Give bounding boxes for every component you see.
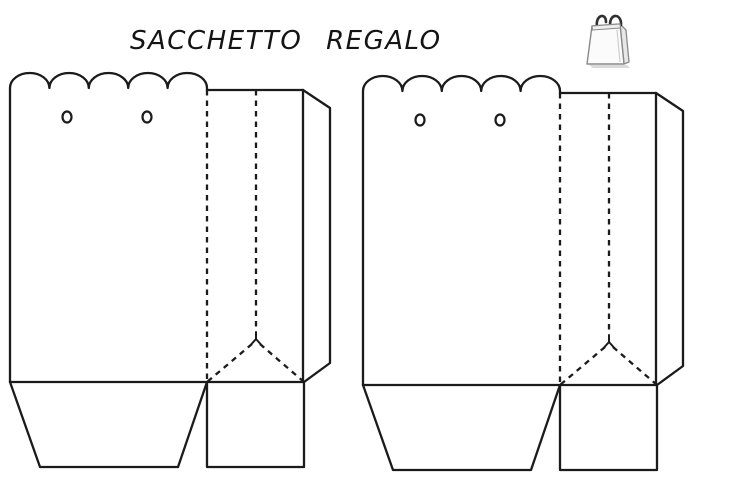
bag-templates-diagram xyxy=(0,0,735,497)
right-bag-template xyxy=(363,76,683,470)
craft-template-page: SACCHETTO REGALO xyxy=(0,0,735,497)
left-bag-template xyxy=(10,73,330,467)
